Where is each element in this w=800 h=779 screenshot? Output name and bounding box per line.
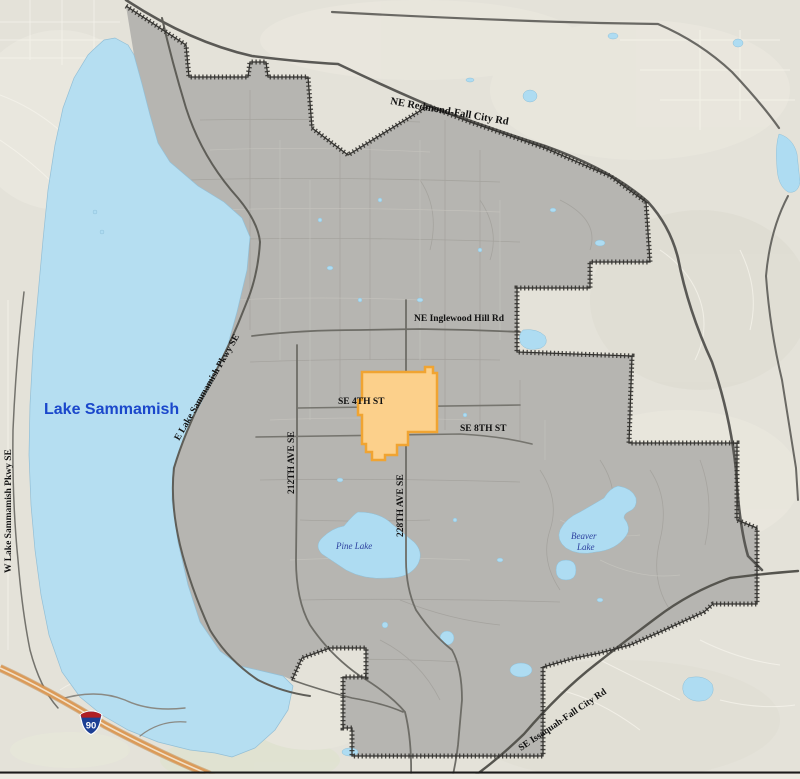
label-pine-lake: Pine Lake — [335, 541, 372, 551]
label-lake-sammamish: Lake Sammamish — [44, 401, 179, 418]
map-margin — [0, 774, 800, 779]
label-inglewood-hill-rd: NE Inglewood Hill Rd — [414, 314, 505, 324]
label-212th-ave-se: 212TH AVE SE — [287, 431, 297, 494]
map-frame: NE Redmond-Fall City Rd NE Inglewood Hil… — [0, 0, 800, 779]
label-228th-ave-se: 228TH AVE SE — [396, 474, 406, 537]
label-se-8th-st: SE 8TH ST — [460, 424, 507, 434]
map-canvas[interactable]: NE Redmond-Fall City Rd NE Inglewood Hil… — [0, 0, 800, 779]
map-border — [0, 772, 800, 774]
label-beaver-lake-2: Lake — [576, 542, 595, 552]
label-w-lake-sammamish-pkwy: W Lake Sammamish Pkwy SE — [4, 449, 14, 573]
label-se-4th-st: SE 4TH ST — [338, 397, 385, 407]
label-beaver-lake-1: Beaver — [571, 531, 597, 541]
shield-number: 90 — [86, 721, 97, 732]
